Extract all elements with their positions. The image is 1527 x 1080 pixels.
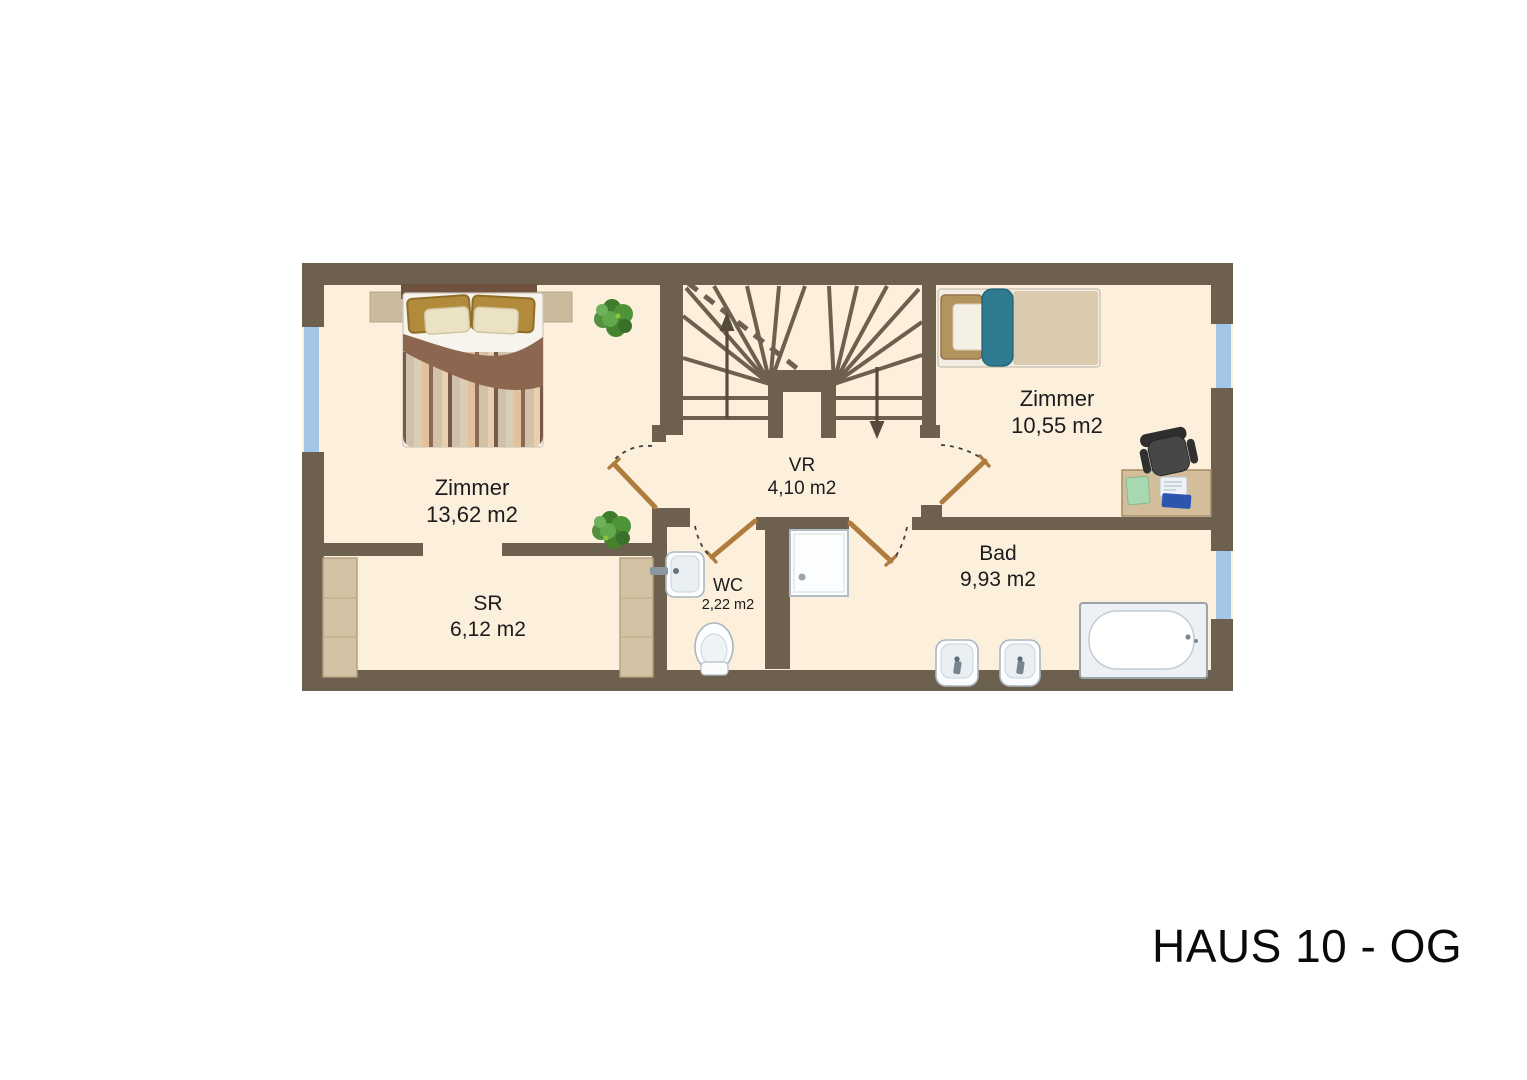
- desk-pad: [1126, 476, 1150, 505]
- wall-wc-left: [652, 527, 667, 670]
- washbasin-icon-1: [936, 640, 978, 686]
- room-label-zimmer-13: Zimmer 13,62 m2: [426, 475, 518, 529]
- washbasin-icon-2: [1000, 640, 1040, 686]
- window-icon-right-bottom: [1216, 551, 1231, 619]
- wall-stair-left-end2: [652, 425, 666, 442]
- wall-stair-center-bar: [768, 370, 836, 392]
- room-name: Zimmer: [1020, 386, 1095, 411]
- wall-stair-right-end: [920, 425, 940, 438]
- room-name: SR: [473, 592, 502, 615]
- wall-vr-bad-left: [756, 517, 849, 530]
- room-area: 4,10 m2: [768, 477, 837, 500]
- wall-bad-top: [912, 517, 1211, 530]
- room-area: 6,12 m2: [450, 617, 526, 643]
- wall-wc-left-stub: [652, 508, 690, 527]
- wall-bad-door-pier: [921, 505, 942, 517]
- room-area: 2,22 m2: [702, 597, 754, 615]
- wall-outer-left-top: [302, 263, 324, 327]
- room-name: WC: [713, 575, 743, 595]
- wall-sr-top-right: [502, 543, 652, 556]
- room-name: VR: [789, 455, 815, 476]
- room-label-zimmer-10: Zimmer 10,55 m2: [1011, 386, 1103, 440]
- wall-stair-left: [660, 285, 683, 425]
- window-icon-left: [304, 327, 319, 452]
- room-label-wc: WC 2,22 m2: [702, 575, 754, 615]
- floor-plan-page: Zimmer 13,62 m2 SR 6,12 m2 WC 2,22 m2 VR…: [0, 0, 1527, 1080]
- laptop-icon: [1160, 477, 1191, 509]
- room-area: 9,93 m2: [960, 567, 1036, 593]
- wall-outer-right-mid: [1211, 388, 1233, 551]
- room-name: Bad: [979, 542, 1016, 565]
- wall-stair-right: [922, 285, 936, 425]
- wall-outer-right-bottom: [1211, 619, 1233, 691]
- wall-outer-top: [302, 263, 1233, 285]
- room-label-sr: SR 6,12 m2: [450, 591, 526, 642]
- single-bed-blanket: [982, 289, 1013, 366]
- wall-wc-right: [765, 530, 790, 669]
- wall-stair-center-left-leg: [768, 392, 783, 438]
- floor-plan-canvas: [0, 0, 1527, 1080]
- single-bed-icon: [938, 289, 1100, 367]
- room-area: 10,55 m2: [1011, 413, 1103, 440]
- window-icon-right-top: [1216, 324, 1231, 388]
- wardrobe-icon-left: [323, 558, 357, 677]
- room-name: Zimmer: [435, 475, 510, 500]
- toilet-icon: [695, 623, 733, 675]
- room-label-vr: VR 4,10 m2: [768, 454, 837, 500]
- wall-sr-top-left: [324, 543, 423, 556]
- wall-stair-center-right-leg: [821, 392, 836, 438]
- room-area: 13,62 m2: [426, 502, 518, 529]
- room-label-bad: Bad 9,93 m2: [960, 541, 1036, 592]
- single-bed-pillow: [953, 304, 986, 350]
- plan-title: HAUS 10 - OG: [1152, 919, 1462, 973]
- wardrobe-icon-right: [620, 558, 653, 677]
- shower-tray-icon: [790, 530, 848, 596]
- bathtub-icon: [1080, 603, 1207, 678]
- desk-icon: [1122, 470, 1211, 516]
- wall-outer-right-top: [1211, 263, 1233, 324]
- wall-outer-left-bottom: [302, 452, 324, 691]
